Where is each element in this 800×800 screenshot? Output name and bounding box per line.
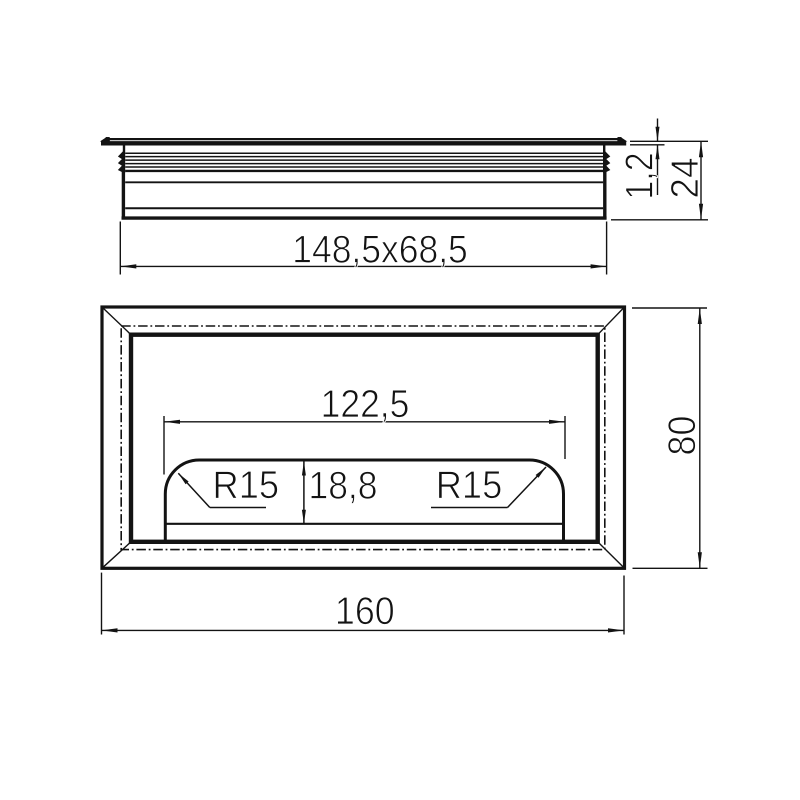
svg-text:80: 80 bbox=[660, 416, 704, 456]
svg-text:148,5x68,5: 148,5x68,5 bbox=[292, 227, 468, 271]
svg-text:24: 24 bbox=[664, 157, 707, 198]
svg-text:1,2: 1,2 bbox=[617, 152, 661, 199]
svg-text:R15: R15 bbox=[436, 463, 503, 506]
svg-text:160: 160 bbox=[335, 589, 395, 633]
svg-text:122,5: 122,5 bbox=[321, 381, 410, 425]
svg-text:18,8: 18,8 bbox=[308, 463, 377, 507]
svg-text:R15: R15 bbox=[213, 463, 280, 506]
